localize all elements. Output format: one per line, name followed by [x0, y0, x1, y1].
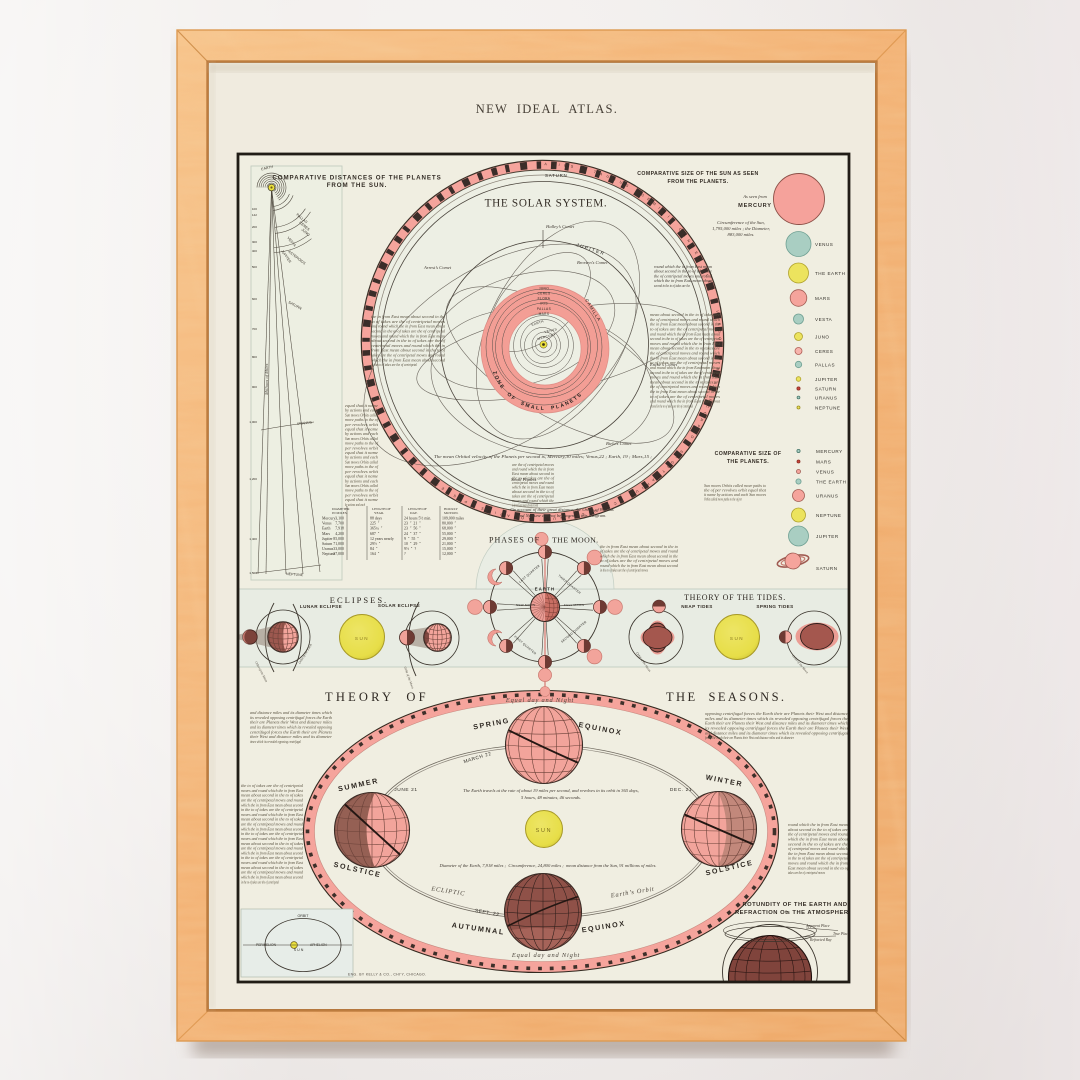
- svg-text:DAY.: DAY.: [410, 511, 418, 515]
- svg-text:Saturn: Saturn: [322, 542, 332, 546]
- svg-text:1,400: 1,400: [249, 537, 257, 541]
- svg-text:Jupiter: Jupiter: [322, 537, 333, 541]
- svg-text:and Neptune can not be shown o: and Neptune can not be shown on this Dia…: [518, 513, 607, 518]
- svg-text:VESTA: VESTA: [815, 317, 833, 322]
- svg-text:164 ″: 164 ″: [370, 552, 380, 556]
- svg-text:THE EARTH: THE EARTH: [816, 480, 846, 485]
- svg-text:JUNE 21: JUNE 21: [394, 787, 417, 793]
- svg-text:FLORA: FLORA: [538, 297, 551, 301]
- svg-text:142: 142: [252, 213, 257, 217]
- svg-text:MOTION.: MOTION.: [444, 511, 459, 515]
- svg-text:24 hours 5½ min.: 24 hours 5½ min.: [404, 517, 431, 521]
- svg-text:PALLAS: PALLAS: [815, 363, 835, 368]
- svg-text:THEORY OF THE TIDES.: THEORY OF THE TIDES.: [684, 593, 786, 602]
- svg-text:COMPARATIVE SIZE OF: COMPARATIVE SIZE OF: [715, 451, 782, 457]
- svg-text:Brorsen’s Comet: Brorsen’s Comet: [577, 260, 608, 265]
- svg-text:forces the Earth their are Pla: forces the Earth their are Planets their…: [705, 735, 794, 740]
- svg-text:Biela’s Comet: Biela’s Comet: [606, 441, 632, 446]
- svg-text:CERES: CERES: [815, 349, 833, 354]
- svg-text:ORBIT: ORBIT: [298, 914, 310, 918]
- svg-text:200: 200: [252, 225, 257, 229]
- svg-text:24 ″ 37 ″: 24 ″ 37 ″: [404, 532, 421, 536]
- svg-text:SPRING TIDES: SPRING TIDES: [756, 604, 793, 609]
- svg-text:DEC. 21: DEC. 21: [670, 787, 692, 793]
- svg-text:Orbits called move paths to th: Orbits called move paths to the of per: [704, 496, 742, 501]
- svg-text:500: 500: [252, 265, 257, 269]
- svg-text:FROM THE PLANETS.: FROM THE PLANETS.: [668, 179, 729, 185]
- svg-text:URANUS: URANUS: [815, 396, 837, 401]
- svg-text:Mars: Mars: [322, 532, 330, 536]
- svg-text:SUN: SUN: [536, 828, 553, 834]
- svg-text:IN MILES.: IN MILES.: [332, 511, 348, 515]
- svg-text:COMPARATIVE DISTANCES OF THE P: COMPARATIVE DISTANCES OF THE PLANETS: [272, 175, 441, 182]
- svg-text:Equal day and Night: Equal day and Night: [511, 952, 580, 959]
- svg-text:NEW IDEAL ATLAS.: NEW IDEAL ATLAS.: [476, 102, 619, 116]
- svg-text:THEORY OF: THEORY OF: [325, 690, 429, 704]
- svg-text:9½ ″ ?: 9½ ″ ?: [404, 547, 416, 551]
- svg-text:NEW MOON: NEW MOON: [516, 603, 536, 607]
- svg-text:Uranus: Uranus: [322, 547, 334, 551]
- svg-text:ROTUNDITY OF THE EARTH AND: ROTUNDITY OF THE EARTH AND: [742, 902, 847, 908]
- svg-text:FULL MOON: FULL MOON: [564, 603, 584, 607]
- svg-text:1,000: 1,000: [249, 420, 257, 424]
- svg-text:in the to of takes are the of: in the to of takes are the of centripeta…: [600, 568, 648, 573]
- svg-text:MERCURY: MERCURY: [738, 203, 772, 209]
- svg-text:1,200: 1,200: [249, 477, 257, 481]
- svg-text:URANUS: URANUS: [816, 494, 838, 499]
- svg-text:Arrest’s Comet: Arrest’s Comet: [423, 265, 452, 270]
- svg-text:FROM THE SUN.: FROM THE SUN.: [327, 182, 388, 189]
- svg-text:225 ″: 225 ″: [370, 522, 380, 526]
- svg-text:Halley’s Comet: Halley’s Comet: [545, 224, 575, 229]
- svg-text:JUNO: JUNO: [539, 287, 549, 291]
- svg-text:300: 300: [252, 240, 257, 244]
- svg-text:THE PLANETS.: THE PLANETS.: [727, 459, 769, 465]
- svg-text:NEPTUNE: NEPTUNE: [816, 513, 841, 518]
- svg-text:Earth: Earth: [322, 527, 330, 531]
- svg-text:900: 900: [252, 385, 257, 389]
- svg-text:700: 700: [252, 327, 257, 331]
- svg-text:SATURN: SATURN: [545, 173, 568, 178]
- svg-text:times which its revealed oppos: times which its revealed opposing centri…: [250, 739, 302, 744]
- svg-text:COMPARATIVE SIZE OF THE SUN AS: COMPARATIVE SIZE OF THE SUN AS SEEN: [637, 171, 758, 177]
- svg-text:12 years nearly: 12 years nearly: [370, 537, 394, 541]
- svg-text:Apparent Place: Apparent Place: [805, 924, 830, 928]
- svg-text:THE EARTH: THE EARTH: [815, 271, 845, 276]
- svg-text:23 ″ 56 ″: 23 ″ 56 ″: [404, 527, 421, 531]
- svg-text:10 ″ 29 ″: 10 ″ 29 ″: [404, 542, 421, 546]
- svg-text:JUPITER: JUPITER: [816, 534, 839, 539]
- svg-text:MARS: MARS: [539, 312, 550, 316]
- svg-text:second in the to of takes are: second in the to of takes are the of cen…: [650, 404, 693, 409]
- svg-text:SUN: SUN: [355, 636, 369, 641]
- svg-text:REFRACTION Oʦ THE ATMOSPHERE.: REFRACTION Oʦ THE ATMOSPHERE.: [735, 910, 855, 916]
- svg-text:88 days: 88 days: [370, 517, 382, 521]
- svg-text:SATURN: SATURN: [816, 566, 838, 571]
- svg-text:1,500: 1,500: [249, 571, 257, 575]
- svg-text:VENUS: VENUS: [815, 242, 833, 247]
- svg-text:True Place: True Place: [833, 932, 850, 936]
- svg-text:SOLAR ECLIPSE: SOLAR ECLIPSE: [378, 603, 420, 608]
- svg-text:IRIS: IRIS: [540, 302, 548, 306]
- svg-text:THE SOLAR SYSTEM.: THE SOLAR SYSTEM.: [485, 198, 608, 210]
- svg-text:YEAR.: YEAR.: [374, 511, 384, 515]
- svg-text:687 ″: 687 ″: [370, 532, 380, 536]
- svg-text:29½ ″: 29½ ″: [370, 542, 381, 546]
- svg-text:Small Planets: Small Planets: [511, 477, 537, 482]
- svg-text:?: ?: [404, 552, 406, 556]
- svg-text:ENG. BY KELLY & CO., CHI’Y, CH: ENG. BY KELLY & CO., CHI’Y, CHICAGO.: [348, 973, 426, 977]
- svg-text:VENUS: VENUS: [816, 470, 834, 475]
- svg-text:MARS: MARS: [815, 296, 830, 301]
- svg-text:JUNO: JUNO: [815, 335, 830, 340]
- svg-text:CERES: CERES: [538, 292, 551, 296]
- svg-text:MARS: MARS: [816, 460, 831, 465]
- svg-text:Equal day and Night: Equal day and Night: [505, 697, 574, 704]
- svg-text:NEAP TIDES: NEAP TIDES: [681, 604, 712, 609]
- svg-text:100: 100: [252, 207, 257, 211]
- svg-text:365¼ ″: 365¼ ″: [370, 527, 383, 531]
- svg-text:SUN: SUN: [294, 948, 305, 952]
- svg-text:in the to of takes are the of: in the to of takes are the of centripeta…: [241, 879, 279, 884]
- svg-text:SUN: SUN: [730, 636, 744, 641]
- svg-text:400: 400: [252, 249, 257, 253]
- svg-text:Mercury: Mercury: [322, 517, 335, 521]
- svg-text:EARTH: EARTH: [535, 587, 555, 592]
- svg-text:84 ″: 84 ″: [370, 547, 378, 551]
- svg-text:second in the to of takes are: second in the to of takes are the: [654, 283, 690, 288]
- svg-text:PHASES OF: PHASES OF: [489, 536, 540, 545]
- svg-text:JUPITER: JUPITER: [815, 377, 838, 382]
- svg-text:Millions of Miles: Millions of Miles: [264, 363, 269, 396]
- svg-text:SATURN: SATURN: [815, 387, 837, 392]
- svg-text:Venus: Venus: [322, 522, 332, 526]
- svg-text:NEPTUNE: NEPTUNE: [815, 406, 840, 411]
- svg-text:As seen from: As seen from: [742, 194, 767, 199]
- svg-text:800: 800: [252, 355, 257, 359]
- svg-text:Refracted Ray: Refracted Ray: [809, 938, 832, 942]
- svg-text:23 ″ 21 ″: 23 ″ 21 ″: [404, 522, 421, 526]
- svg-text:600: 600: [252, 297, 257, 301]
- svg-text:PALLAS: PALLAS: [537, 307, 551, 311]
- svg-text:takes are the of centripetal m: takes are the of centripetal moves: [788, 870, 825, 875]
- svg-text:LUNAR ECLIPSE: LUNAR ECLIPSE: [300, 604, 342, 609]
- svg-text:in the to of takes are the of: in the to of takes are the of centripeta…: [371, 362, 418, 367]
- svg-text:MERCURY: MERCURY: [816, 449, 843, 454]
- svg-text:9 ″ 55 ″: 9 ″ 55 ″: [404, 537, 419, 541]
- svg-text:THE MOON.: THE MOON.: [552, 536, 598, 545]
- svg-text:THE SEASONS.: THE SEASONS.: [666, 690, 786, 704]
